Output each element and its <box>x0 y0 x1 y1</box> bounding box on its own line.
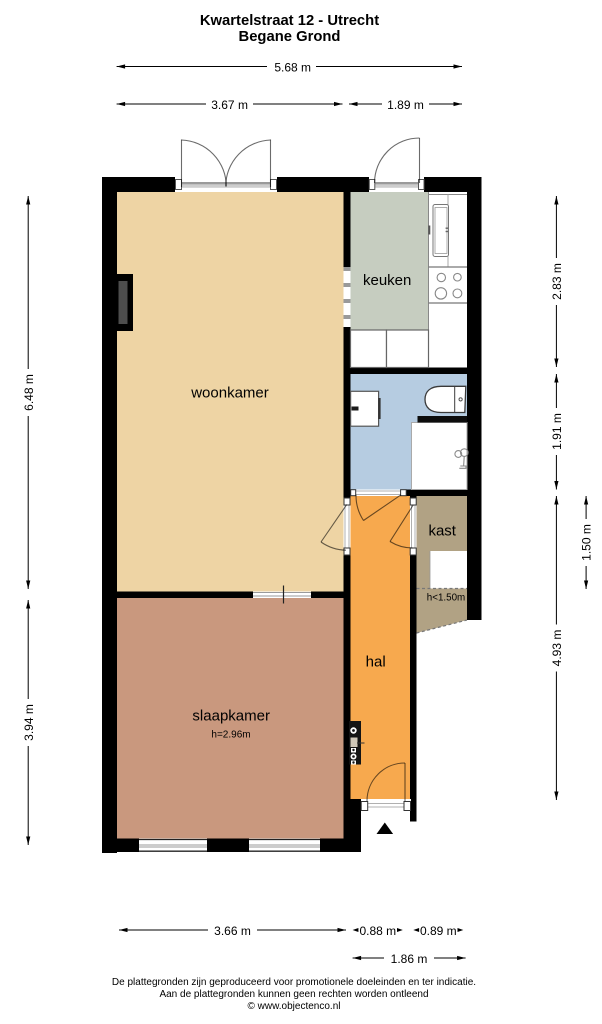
svg-text:3.67 m: 3.67 m <box>211 98 248 112</box>
svg-text:1.89 m: 1.89 m <box>387 98 424 112</box>
svg-text:h<1.50m: h<1.50m <box>427 593 465 604</box>
svg-text:1.91 m: 1.91 m <box>550 413 564 450</box>
svg-text:hal: hal <box>366 654 386 671</box>
svg-text:slaapkamer: slaapkamer <box>192 708 270 725</box>
svg-text:kast: kast <box>428 523 456 540</box>
svg-text:Kwartelstraat 12 - Utrecht: Kwartelstraat 12 - Utrecht <box>200 13 379 29</box>
svg-text:Aan de plattegronden kunnen ge: Aan de plattegronden kunnen geen rechten… <box>159 989 428 1000</box>
svg-text:keuken: keuken <box>363 272 411 289</box>
svg-text:h=2.96m: h=2.96m <box>211 730 250 741</box>
svg-text:0.89 m: 0.89 m <box>420 924 457 938</box>
svg-text:Begane Grond: Begane Grond <box>239 29 341 45</box>
svg-text:© www.objectenco.nl: © www.objectenco.nl <box>248 1001 341 1012</box>
svg-text:3.94 m: 3.94 m <box>22 704 36 741</box>
svg-text:2.83 m: 2.83 m <box>550 263 564 300</box>
svg-text:1.50 m: 1.50 m <box>580 524 594 561</box>
svg-text:De plattegronden zijn geproduc: De plattegronden zijn geproduceerd voor … <box>112 977 476 988</box>
svg-text:0.88 m: 0.88 m <box>359 924 396 938</box>
svg-text:4.93 m: 4.93 m <box>550 630 564 667</box>
svg-text:6.48 m: 6.48 m <box>22 374 36 411</box>
svg-text:5.68 m: 5.68 m <box>274 60 311 74</box>
svg-text:3.66 m: 3.66 m <box>214 924 251 938</box>
svg-text:1.86 m: 1.86 m <box>391 952 428 966</box>
svg-text:woonkamer: woonkamer <box>190 385 269 402</box>
